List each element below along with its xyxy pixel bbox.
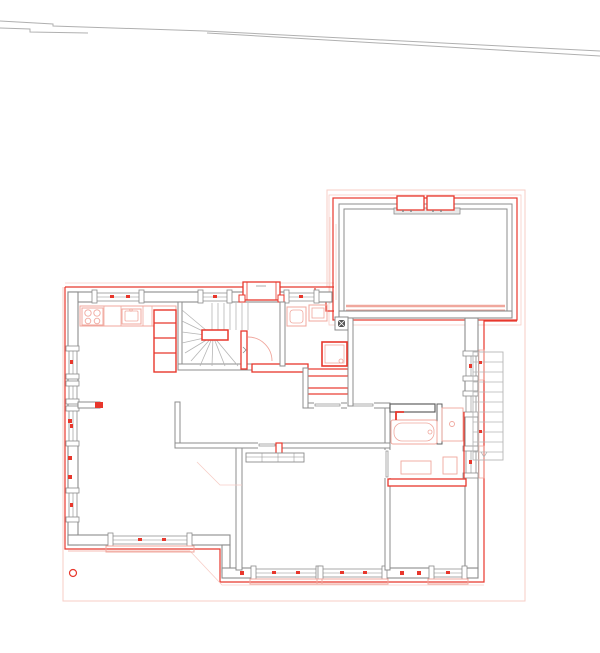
floor-plan-page bbox=[0, 0, 600, 653]
bathroom-fixtures bbox=[391, 408, 464, 478]
floor-plan-svg bbox=[0, 0, 600, 653]
ceiling-slope-line bbox=[197, 462, 242, 485]
site-context-lines bbox=[0, 21, 600, 56]
annex-walls bbox=[315, 196, 517, 320]
stair bbox=[182, 303, 272, 369]
kitchen-fixtures bbox=[80, 306, 176, 372]
windows bbox=[66, 282, 484, 584]
